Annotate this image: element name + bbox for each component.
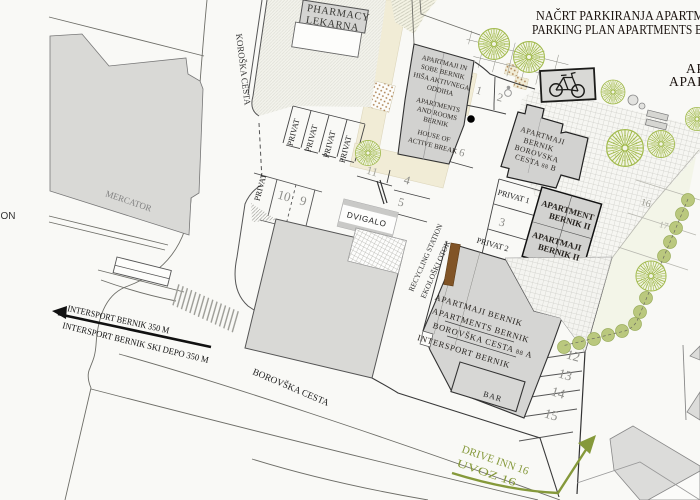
svg-text:NAČRT PARKIRANJA APARTMAJI BER: NAČRT PARKIRANJA APARTMAJI BERNIK xyxy=(536,8,700,23)
svg-text:ON: ON xyxy=(1,211,16,222)
svg-text:APARTMA BERNIK: APARTMA BERNIK xyxy=(669,74,700,89)
svg-text:PARKING PLAN APARTMENTS BERNIK: PARKING PLAN APARTMENTS BERNIK xyxy=(532,22,700,37)
